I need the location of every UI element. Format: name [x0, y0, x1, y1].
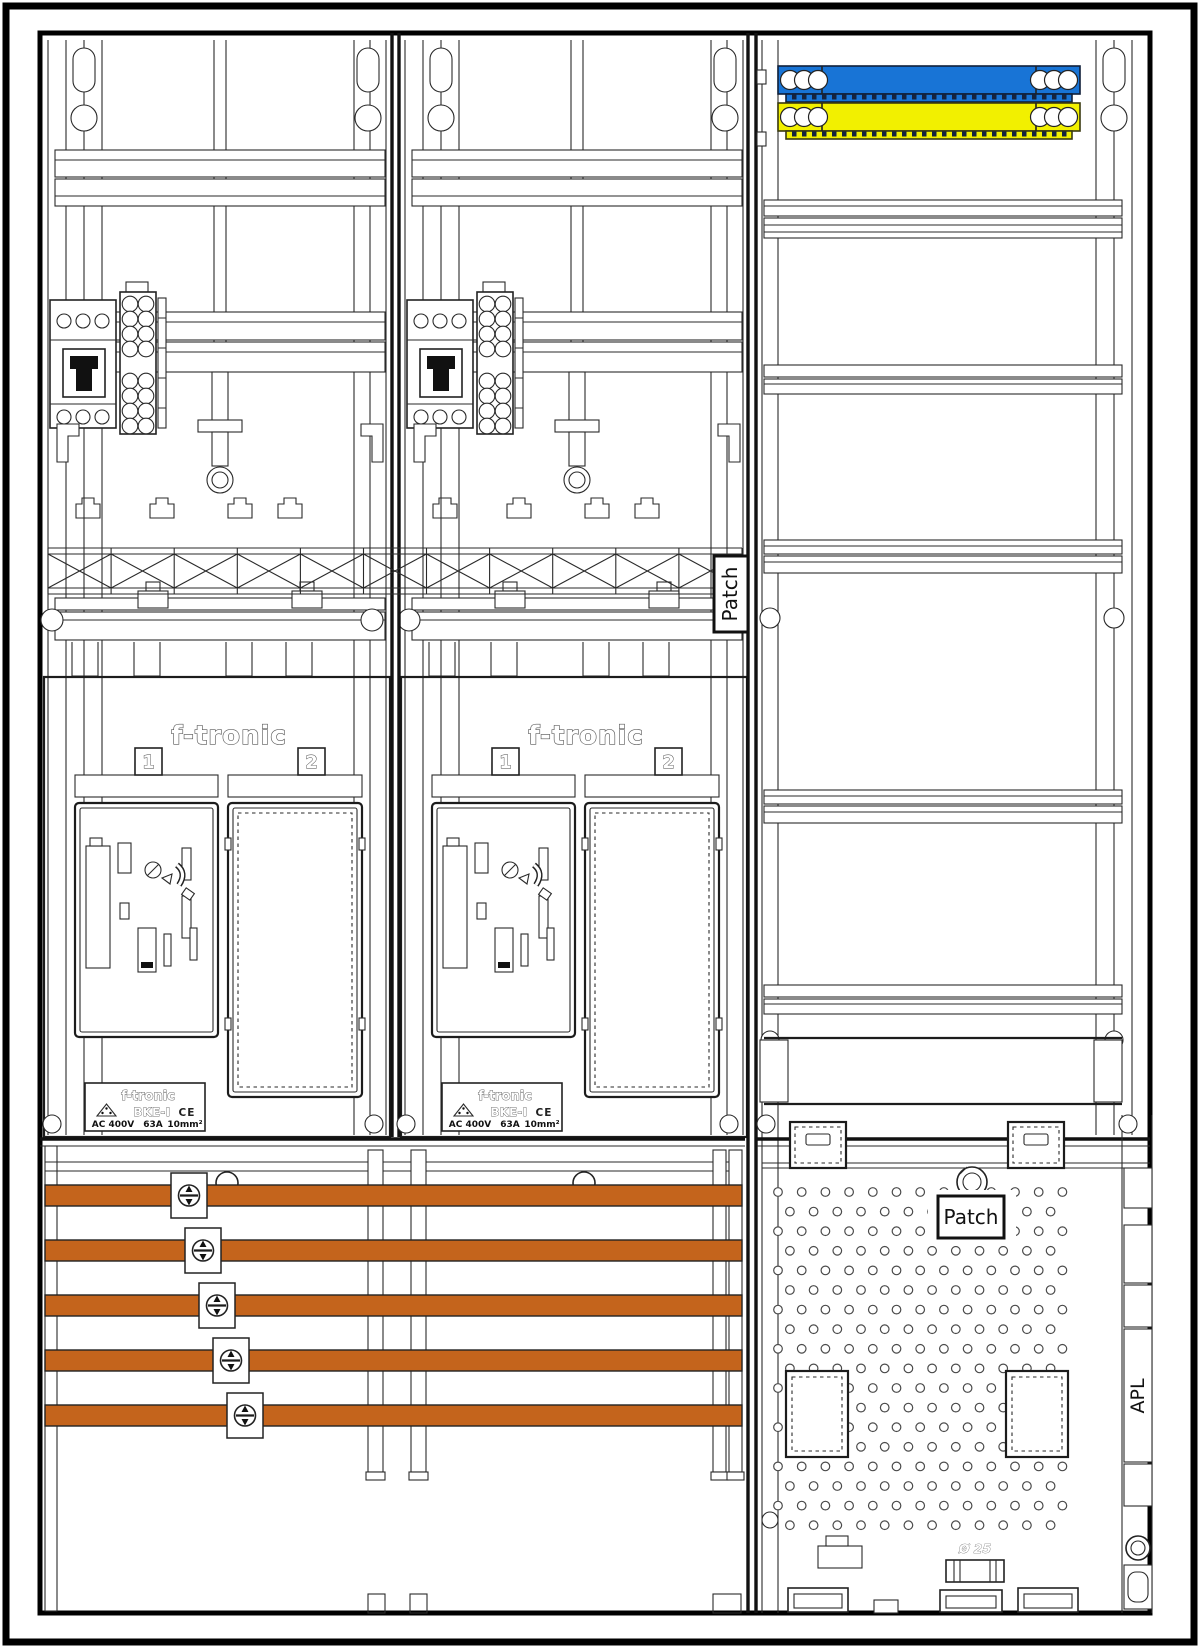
nameplate-model: BKE-I	[490, 1105, 527, 1119]
busbar	[45, 1350, 742, 1371]
nameplate-model: BKE-I	[133, 1105, 170, 1119]
cabinet-drawing-svg: f-tronic 1 2 f-tronic BKE-I CE AC 400V 6…	[0, 0, 1200, 1648]
hinge	[1126, 1536, 1150, 1560]
slot2-number: 2	[305, 752, 318, 773]
busbar	[45, 1240, 742, 1261]
clamp-screw	[179, 1185, 200, 1206]
knockout-square-large	[786, 1371, 848, 1457]
clamp-screw	[207, 1295, 228, 1316]
ce-mark: CE	[179, 1107, 196, 1119]
meter-cabinet-technical-drawing: f-tronic 1 2 f-tronic BKE-I CE AC 400V 6…	[0, 0, 1200, 1648]
knockout-square-large	[1006, 1371, 1068, 1457]
clamp-screw	[193, 1240, 214, 1261]
brand-text: f-tronic	[528, 721, 644, 751]
rating-voltage: AC 400V	[449, 1120, 491, 1130]
nameplate-brand: f-tronic	[478, 1089, 532, 1104]
rating-wire: 10mm²	[524, 1120, 559, 1130]
slot1-number: 1	[499, 752, 512, 773]
gland-diameter-text: Ø 25	[958, 1541, 992, 1556]
slot1-number: 1	[142, 752, 155, 773]
slot2-number: 2	[662, 752, 675, 773]
busbar	[45, 1405, 742, 1426]
rating-current: 63A	[143, 1120, 163, 1130]
apl-side-strip: APL	[1124, 1168, 1152, 1609]
patch-apl-text: Patch	[944, 1205, 999, 1229]
rating-voltage: AC 400V	[92, 1120, 134, 1130]
rating-current: 63A	[500, 1120, 520, 1130]
busbar	[45, 1295, 742, 1316]
nameplate-brand: f-tronic	[121, 1089, 175, 1104]
patch-rail-label: Patch	[714, 556, 748, 632]
patch-apl-label: Patch	[928, 1190, 1016, 1246]
ce-mark: CE	[536, 1107, 553, 1119]
clamp-screw	[221, 1350, 242, 1371]
busbar	[45, 1185, 742, 1206]
patch-rail-text: Patch	[718, 567, 742, 622]
clamp-screw	[235, 1405, 256, 1426]
rating-wire: 10mm²	[167, 1120, 202, 1130]
brand-text: f-tronic	[171, 721, 287, 751]
apl-text: APL	[1127, 1378, 1149, 1413]
